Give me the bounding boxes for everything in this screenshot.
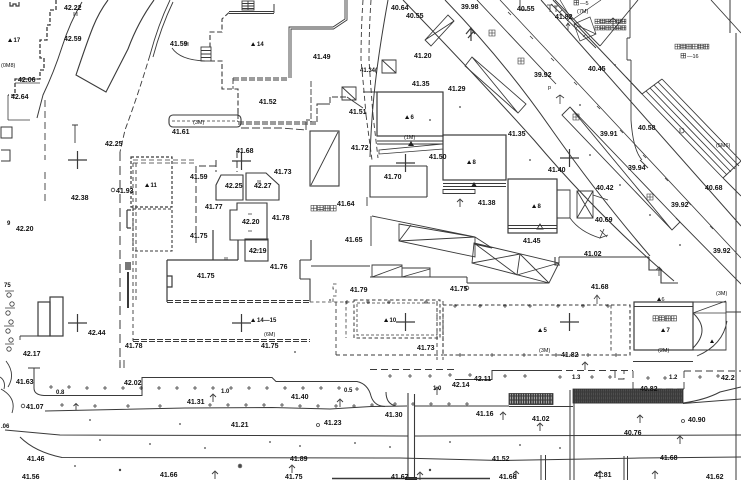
svg-text:41.59: 41.59 [170, 41, 188, 48]
svg-text:14—15: 14—15 [257, 318, 277, 324]
svg-text:p: p [548, 85, 551, 91]
svg-text:41.68: 41.68 [236, 148, 254, 155]
svg-text:(6M): (6M) [264, 332, 275, 338]
svg-text:41.81: 41.81 [594, 472, 612, 479]
svg-text:41.73: 41.73 [417, 345, 435, 352]
svg-text:(7M): (7M) [577, 9, 588, 15]
svg-text:(3M): (3M) [716, 291, 727, 297]
svg-text:41.34(: 41.34( [360, 68, 377, 74]
svg-text:41.16: 41.16 [476, 411, 494, 418]
svg-text:(1M): (1M) [404, 135, 415, 141]
svg-text:41.40: 41.40 [548, 167, 566, 174]
svg-text:6: 6 [662, 297, 665, 303]
svg-text:41.35: 41.35 [508, 131, 526, 138]
svg-text:41.63: 41.63 [16, 379, 34, 386]
svg-text:41.38: 41.38 [478, 200, 496, 207]
svg-text:41.29: 41.29 [448, 86, 466, 93]
svg-text:42.25: 42.25 [105, 141, 123, 148]
svg-text:41.66: 41.66 [160, 472, 178, 479]
svg-text:(2M): (2M) [658, 348, 669, 354]
svg-text:39.94: 39.94 [628, 165, 646, 172]
svg-text:42.06: 42.06 [18, 77, 36, 84]
svg-text:41.31: 41.31 [187, 399, 205, 406]
svg-text:41.75: 41.75 [285, 474, 303, 480]
svg-text:1.2: 1.2 [669, 375, 678, 381]
svg-text:41.77: 41.77 [205, 204, 223, 211]
svg-text:42.14: 42.14 [452, 382, 470, 389]
svg-text:41.75: 41.75 [450, 286, 468, 293]
svg-text:(3M): (3M) [193, 120, 204, 126]
svg-text:41.75: 41.75 [197, 273, 215, 280]
svg-text:14: 14 [257, 42, 264, 48]
svg-text:40.68: 40.68 [705, 185, 723, 192]
svg-text:(3M): (3M) [539, 348, 550, 354]
svg-text:42.59: 42.59 [64, 36, 82, 43]
svg-text:41.40: 41.40 [291, 394, 309, 401]
svg-text:17: 17 [14, 38, 21, 44]
svg-text:41.56: 41.56 [22, 474, 40, 480]
svg-text:40.82: 40.82 [640, 386, 658, 393]
svg-text:42.25: 42.25 [225, 183, 243, 190]
svg-text:42.2: 42.2 [721, 375, 735, 382]
svg-text:39.92: 39.92 [534, 72, 552, 79]
svg-text:42.11: 42.11 [474, 376, 491, 383]
svg-text:6: 6 [411, 115, 415, 121]
svg-text:41.52: 41.52 [259, 99, 277, 106]
svg-text:40.45: 40.45 [588, 66, 606, 73]
svg-text:42.38: 42.38 [71, 195, 89, 202]
svg-text:41.23: 41.23 [324, 420, 342, 427]
svg-text:41.02: 41.02 [584, 251, 602, 258]
svg-text:41.78: 41.78 [272, 215, 290, 222]
svg-text:9: 9 [7, 221, 11, 227]
svg-text:40.90: 40.90 [688, 417, 706, 424]
svg-text:.06: .06 [1, 424, 10, 430]
svg-text:42.22: 42.22 [64, 5, 82, 12]
svg-text:(0M8): (0M8) [1, 63, 16, 69]
svg-text:41.89: 41.89 [290, 456, 308, 463]
svg-text:41.07: 41.07 [26, 404, 44, 411]
svg-text:42.19: 42.19 [249, 248, 267, 255]
svg-text:42.02: 42.02 [124, 380, 142, 387]
svg-text:41.82: 41.82 [555, 14, 573, 21]
svg-text:41.93: 41.93 [116, 188, 134, 195]
svg-text:1.3: 1.3 [572, 375, 581, 381]
svg-text:41.82: 41.82 [561, 352, 579, 359]
svg-text:7: 7 [667, 328, 671, 334]
svg-text:75: 75 [4, 283, 11, 289]
svg-text:40.55: 40.55 [517, 6, 535, 13]
svg-text:41.75: 41.75 [190, 233, 208, 240]
svg-text:41.79: 41.79 [350, 287, 368, 294]
svg-text:5: 5 [544, 328, 548, 334]
svg-text:0.8: 0.8 [56, 390, 65, 396]
svg-text:41.78: 41.78 [125, 343, 143, 350]
svg-text:41.62: 41.62 [706, 474, 724, 480]
svg-text:41.61: 41.61 [172, 129, 190, 136]
svg-text:0.5: 0.5 [344, 388, 353, 394]
svg-text:39.98: 39.98 [461, 4, 479, 11]
svg-text:(5M6): (5M6) [716, 143, 731, 149]
svg-text:39.92: 39.92 [671, 202, 689, 209]
svg-text:41.52: 41.52 [492, 456, 510, 463]
svg-text:11: 11 [151, 183, 158, 189]
svg-text:41.65: 41.65 [345, 237, 363, 244]
svg-text:40.69: 40.69 [595, 217, 613, 224]
svg-text:41.64: 41.64 [337, 201, 355, 208]
svg-text:8: 8 [538, 204, 542, 210]
svg-text:8: 8 [473, 160, 477, 166]
svg-text:41.30: 41.30 [385, 412, 403, 419]
svg-text:42.17: 42.17 [23, 351, 41, 358]
svg-text:39.92: 39.92 [713, 248, 731, 255]
svg-text:1.0: 1.0 [221, 389, 230, 395]
svg-text:40.76: 40.76 [624, 430, 642, 437]
svg-text:42.44: 42.44 [88, 330, 106, 337]
svg-text:40.55: 40.55 [406, 13, 424, 20]
svg-text:41.51: 41.51 [349, 109, 367, 116]
svg-text:41.59: 41.59 [190, 174, 208, 181]
svg-text:—16: —16 [687, 54, 699, 60]
svg-text:41.68: 41.68 [660, 455, 678, 462]
svg-text:41.67: 41.67 [391, 474, 409, 480]
svg-text:1.0: 1.0 [433, 386, 442, 392]
svg-text:41.72: 41.72 [351, 145, 369, 152]
svg-text:40.64: 40.64 [391, 5, 409, 12]
svg-text:41.66: 41.66 [499, 474, 517, 480]
svg-text:42.64: 42.64 [11, 94, 29, 101]
svg-text:41.76: 41.76 [270, 264, 288, 271]
svg-text:41.02: 41.02 [532, 416, 550, 423]
svg-text:39.91: 39.91 [600, 131, 618, 138]
svg-text:42.20: 42.20 [242, 219, 260, 226]
svg-text:41.20: 41.20 [414, 53, 432, 60]
svg-text:41.73: 41.73 [274, 169, 292, 176]
svg-text:41.50: 41.50 [429, 154, 447, 161]
svg-text:41.70: 41.70 [384, 174, 402, 181]
svg-text:10: 10 [390, 318, 397, 324]
svg-text:40.58: 40.58 [638, 125, 656, 132]
svg-text:41.35: 41.35 [412, 81, 430, 88]
svg-text:41.49: 41.49 [313, 54, 331, 61]
svg-text:—5: —5 [580, 1, 589, 7]
svg-text:41.45: 41.45 [523, 238, 541, 245]
svg-text:41.68: 41.68 [591, 284, 609, 291]
svg-text:41.46: 41.46 [27, 456, 45, 463]
svg-text:42.20: 42.20 [16, 226, 34, 233]
svg-text:42.27: 42.27 [254, 183, 272, 190]
svg-text:41.75: 41.75 [261, 343, 279, 350]
svg-text:40.42: 40.42 [596, 185, 614, 192]
svg-text:41.21: 41.21 [231, 422, 249, 429]
